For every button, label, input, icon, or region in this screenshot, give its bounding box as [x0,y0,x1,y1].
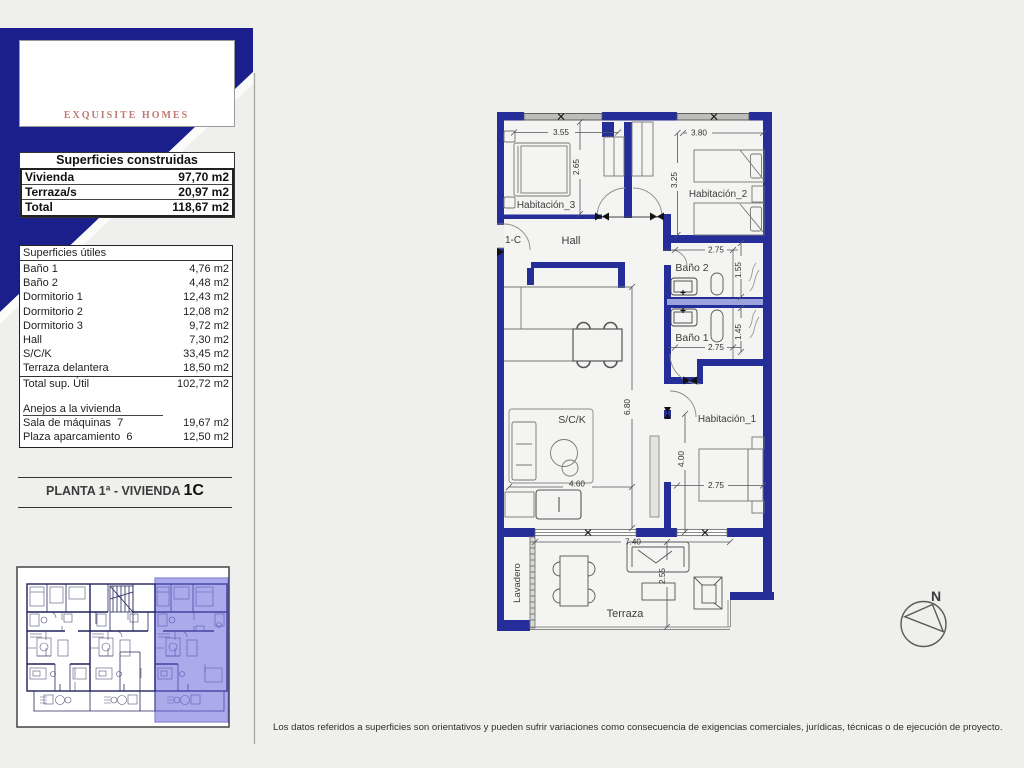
svg-text:2.75: 2.75 [708,246,724,255]
svg-text:N: N [931,588,941,604]
svg-text:Habitación_1: Habitación_1 [698,414,757,425]
svg-text:Hall: Hall [562,235,581,247]
svg-text:1-C: 1-C [505,235,521,246]
svg-text:4.00: 4.00 [677,451,686,467]
svg-text:7.40: 7.40 [625,538,641,547]
svg-text:3.25: 3.25 [670,172,679,188]
svg-text:Baño 2: Baño 2 [675,262,708,274]
svg-text:Terraza: Terraza [607,608,645,620]
svg-text:2.75: 2.75 [708,481,724,490]
svg-text:2.75: 2.75 [708,343,724,352]
svg-text:3.55: 3.55 [553,128,569,137]
svg-text:Baño 1: Baño 1 [675,332,708,344]
svg-text:1.45: 1.45 [734,324,743,340]
svg-text:6.80: 6.80 [623,399,632,415]
svg-text:2.65: 2.65 [572,159,581,175]
svg-text:1.55: 1.55 [734,262,743,278]
svg-text:S/C/K: S/C/K [558,414,585,426]
svg-text:Habitación_3: Habitación_3 [517,200,576,211]
svg-text:4.60: 4.60 [569,480,585,489]
svg-text:3.80: 3.80 [691,129,707,138]
svg-text:Habitación_2: Habitación_2 [689,189,748,200]
svg-text:Lavadero: Lavadero [512,563,523,603]
svg-text:2.55: 2.55 [658,568,667,584]
